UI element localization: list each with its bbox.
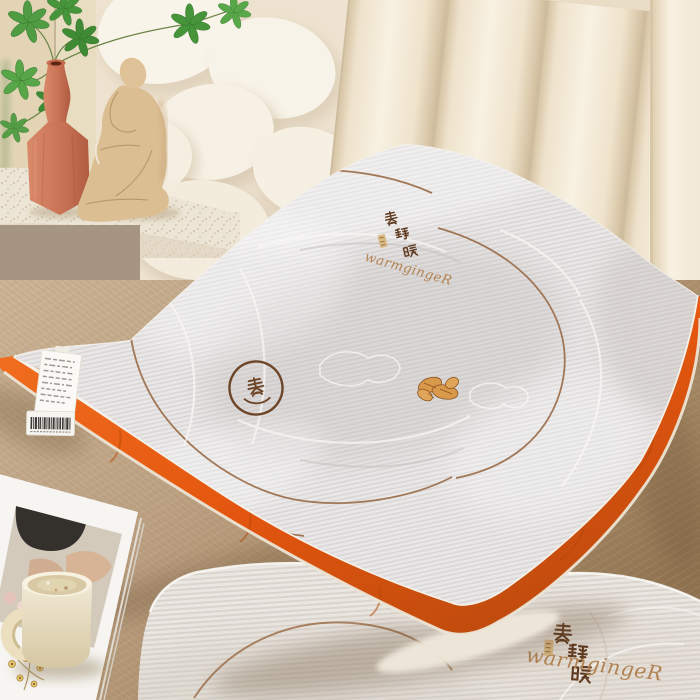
- vase-mouth: [51, 62, 62, 66]
- right-pillar: [653, 0, 700, 305]
- pillar-edge: [650, 0, 653, 305]
- product-photo-stage: warmgingeR: [0, 0, 700, 700]
- photo-canvas: warmgingeR: [0, 0, 700, 700]
